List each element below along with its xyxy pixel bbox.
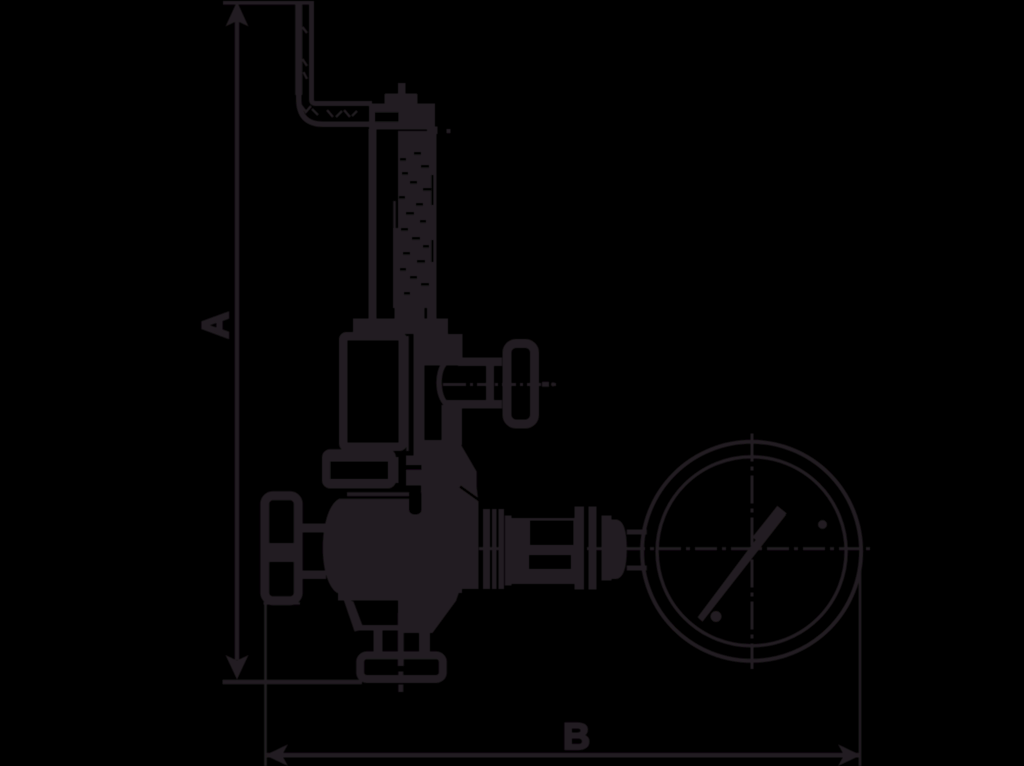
svg-text:A: A: [194, 312, 236, 339]
svg-text:B: B: [563, 715, 590, 757]
